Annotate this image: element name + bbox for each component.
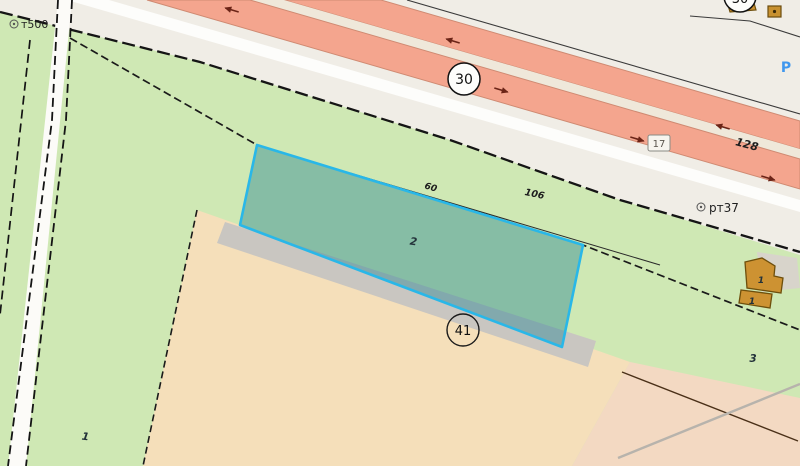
building-upper-number: 1 (758, 276, 764, 286)
survey-point-dot-icon (13, 23, 15, 25)
survey-point-t500-label: т500 (21, 18, 48, 31)
road-number-main-text: 30 (455, 72, 473, 88)
building-lower-number: 1 (749, 297, 755, 307)
parking-symbol: P (781, 60, 791, 76)
small-structure-dot-icon (773, 10, 776, 13)
parcel-right-number: 3 (749, 353, 756, 365)
road-segment-box-text: 17 (653, 139, 666, 150)
cadastral-map-viewport[interactable]: 1 1 30 30 41 17 128 60 106 2 1 3 т500 рт… (0, 0, 800, 466)
survey-point-dot-icon (700, 206, 702, 208)
road-number-top-right-text: 30 (732, 0, 749, 7)
road-number-junction-text: 41 (455, 324, 472, 339)
survey-point-rt37-label: рт37 (709, 201, 739, 215)
